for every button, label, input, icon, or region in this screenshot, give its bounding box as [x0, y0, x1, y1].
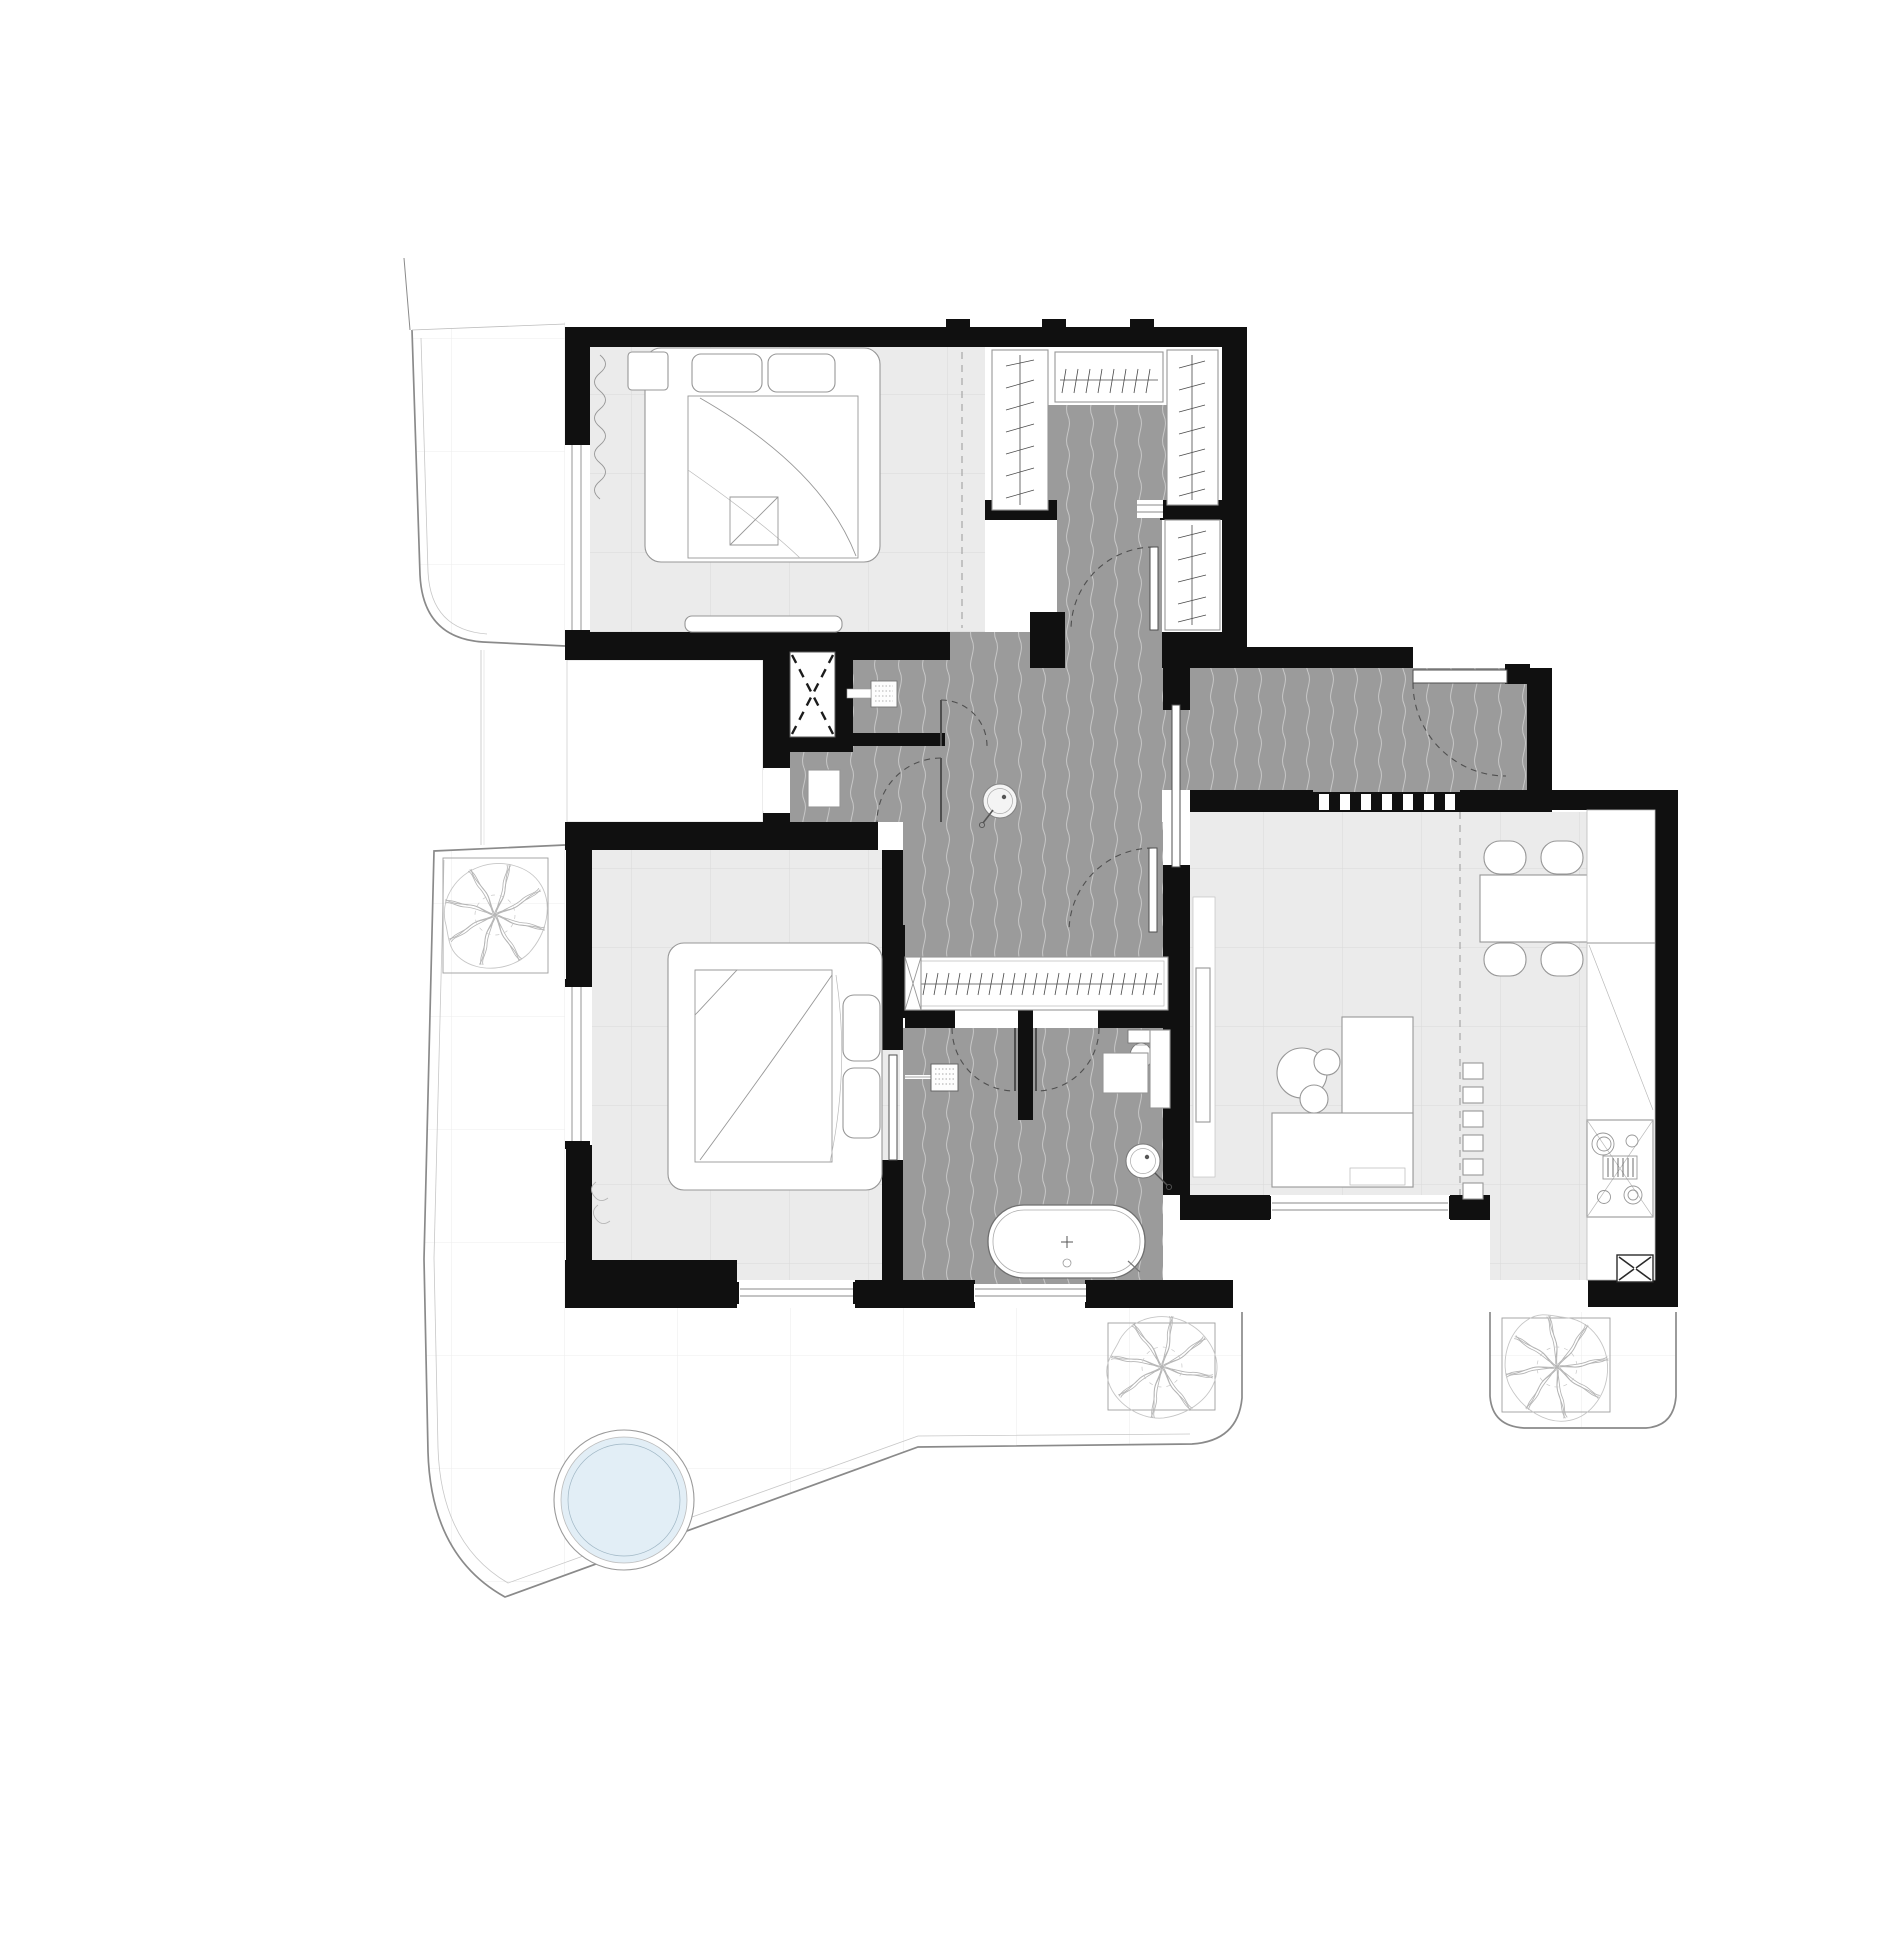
- window-master-left: [565, 979, 590, 1149]
- entry-grille: [1313, 792, 1460, 812]
- wardrobe-closet-top-shelf: [1055, 352, 1163, 402]
- pocket-door-hall-living: [1172, 705, 1180, 867]
- service-shaft-icon: [1617, 1255, 1653, 1282]
- headboard-cushion: [843, 995, 880, 1061]
- nightstand: [628, 352, 668, 390]
- wardrobe-closet-left: [992, 350, 1048, 510]
- wardrobe-closet-right: [1167, 350, 1218, 505]
- floor-plan-page: [0, 0, 1896, 1951]
- dining-chair: [1484, 943, 1526, 976]
- bed-upper: [645, 348, 880, 562]
- window-living-bottom: [1263, 1196, 1457, 1219]
- bed-bench: [685, 616, 842, 632]
- kitchen: [1587, 810, 1655, 1282]
- pillow: [768, 354, 835, 392]
- bathroom-cabinet: [1150, 1030, 1170, 1108]
- hall-cabinet: [808, 770, 840, 807]
- bathtub-icon: [988, 1205, 1145, 1278]
- window-master-bottom: [731, 1282, 861, 1304]
- tv-console: [1193, 897, 1215, 1177]
- bed-master: [668, 943, 882, 1190]
- floor-plan-drawing: [0, 0, 1896, 1951]
- dining-chair: [1484, 841, 1526, 874]
- terrace-upper-left: [412, 322, 565, 646]
- pocket-door-master-bath: [889, 1055, 897, 1160]
- headboard-cushion: [843, 1068, 880, 1138]
- window-closet-corridor: [1137, 500, 1163, 518]
- coffee-table: [1300, 1085, 1328, 1113]
- wardrobe-corridor: [1165, 520, 1220, 630]
- wardrobe-hall-long: [905, 957, 1168, 1010]
- window-bedroom-upper: [565, 437, 590, 638]
- cooktop-icon: [1587, 1120, 1653, 1217]
- bathroom-vanity: [1103, 1053, 1148, 1093]
- coffee-table: [1314, 1049, 1340, 1075]
- dining-table: [1480, 875, 1588, 942]
- sofa: [1272, 1113, 1413, 1187]
- dining-chair: [1541, 943, 1583, 976]
- door-opening-storage: [763, 770, 790, 811]
- dining-chair: [1541, 841, 1583, 874]
- pool: [554, 1430, 694, 1570]
- pillow: [692, 354, 762, 392]
- storage-room-floor: [567, 660, 763, 822]
- elevator-icon: [790, 652, 835, 737]
- window-bathroom-bottom: [966, 1282, 1094, 1304]
